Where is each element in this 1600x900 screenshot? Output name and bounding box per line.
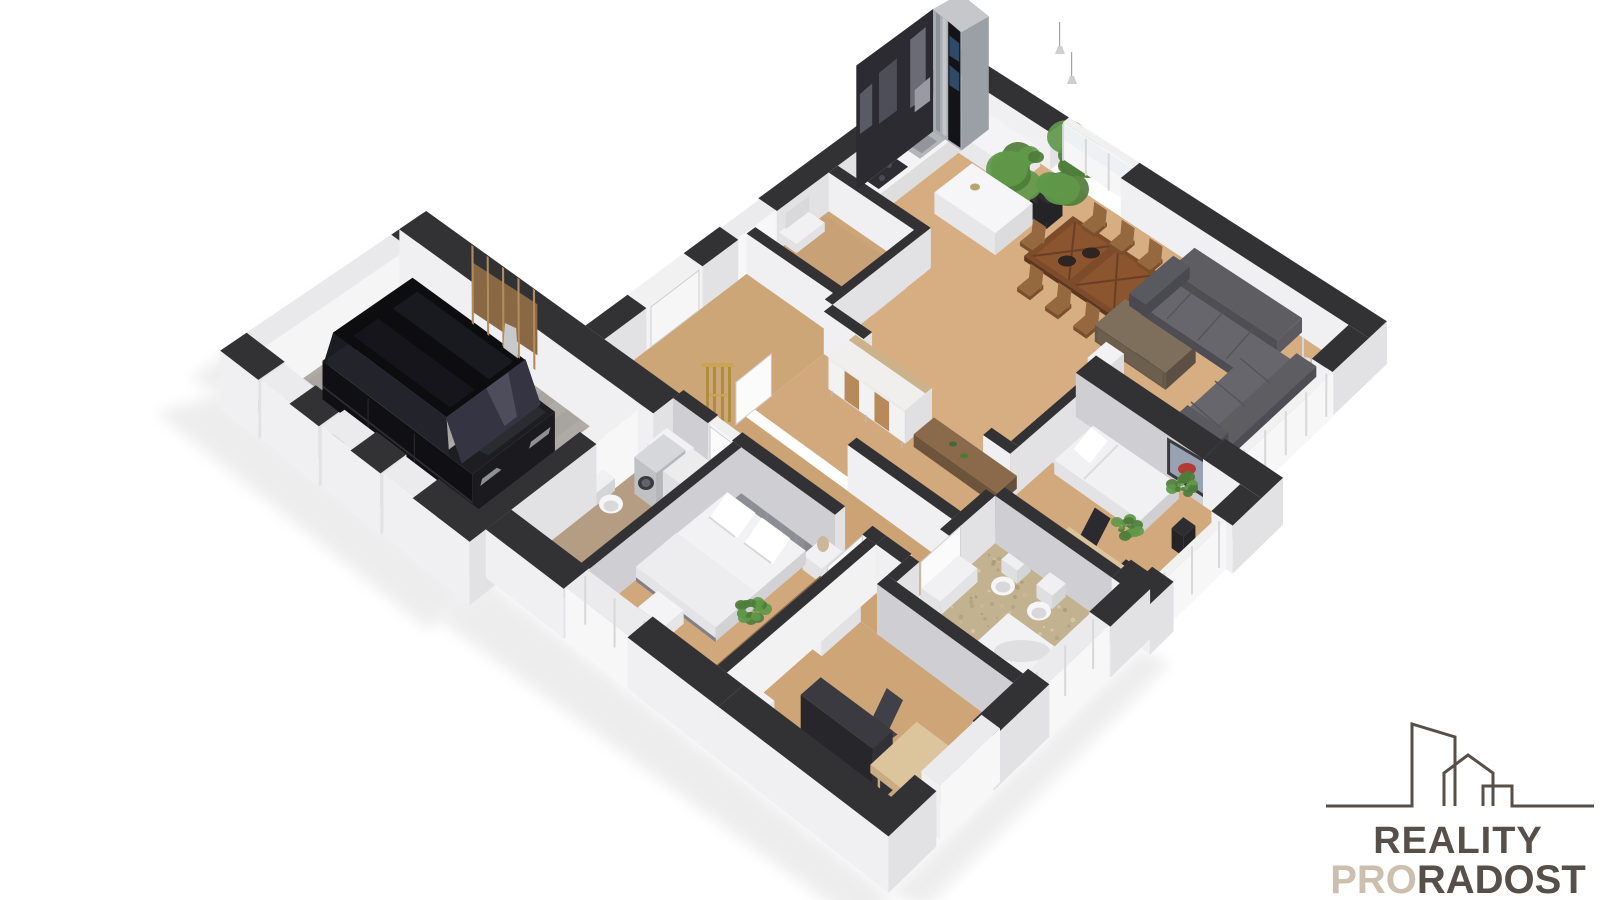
svg-text:REALITY: REALITY (1373, 820, 1543, 862)
svg-text:PRORADOST: PRORADOST (1330, 858, 1586, 900)
